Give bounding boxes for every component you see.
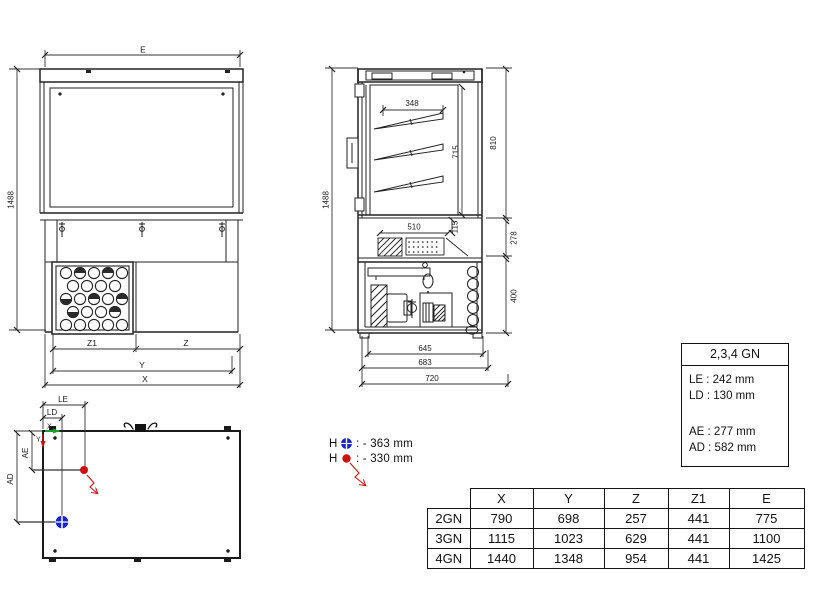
dim-label-e: E xyxy=(140,45,146,55)
legend-red-label: H xyxy=(329,453,340,465)
side-view-machine-compartment xyxy=(358,262,482,338)
spec-table-row-2gn: 2GN 790 698 257 441 775 xyxy=(428,509,805,529)
gn-info-title: 2,3,4 GN xyxy=(682,344,788,366)
dim-label-1488-side: 1488 xyxy=(322,191,331,209)
top-view-dimension-lines xyxy=(14,401,85,522)
front-view-adjuster-screws xyxy=(59,222,225,237)
side-view: 1488 348 715 810 510 115 278 400 645 683… xyxy=(320,45,540,400)
spec-cell: 1440 xyxy=(470,549,533,569)
spec-blank-cell xyxy=(428,489,471,509)
dim-label-278: 278 xyxy=(510,231,519,245)
dim-label-683: 683 xyxy=(418,358,432,367)
spec-header-y: Y xyxy=(533,489,604,509)
top-view-outline xyxy=(43,426,240,562)
spec-cell: 790 xyxy=(470,509,533,529)
spec-cell: 775 xyxy=(729,509,804,529)
spec-table: X Y Z Z1 E 2GN 790 698 257 441 775 3GN 1… xyxy=(427,488,805,569)
gn-info-row-le: LE : 242 mm xyxy=(689,373,788,389)
gn-info-box: 2,3,4 GN LE : 242 mm LD : 130 mm AE : 27… xyxy=(681,343,789,467)
dim-label-115: 115 xyxy=(451,220,460,233)
legend-blue-value: : - 363 mm xyxy=(356,438,413,450)
dim-label-ld: LD xyxy=(47,408,57,417)
dim-label-400: 400 xyxy=(510,289,519,303)
dim-label-ad: AD xyxy=(6,473,15,484)
dim-label-x: X xyxy=(142,374,148,384)
dim-label-348: 348 xyxy=(405,99,419,108)
gn-info-row-ld: LD : 130 mm xyxy=(689,389,788,405)
axis-label-y: Y xyxy=(36,437,41,444)
dim-label-720: 720 xyxy=(425,374,439,383)
top-view-axes xyxy=(43,431,59,447)
side-view-refrigerated-well xyxy=(358,238,482,262)
spec-cell: 1023 xyxy=(533,529,604,549)
dim-label-ae: AE xyxy=(21,448,30,459)
spec-cell: 441 xyxy=(668,529,729,549)
red-position-marker xyxy=(80,466,88,474)
front-view-control-panel xyxy=(52,262,133,334)
spec-row-label: 4GN xyxy=(428,549,471,569)
blue-marker-icon xyxy=(340,437,353,450)
dim-label-z1: Z1 xyxy=(87,338,97,348)
spec-header-z1: Z1 xyxy=(668,489,729,509)
dim-label-y: Y xyxy=(139,360,145,370)
top-view-labels: LE LD X Y AE AD xyxy=(6,395,68,485)
dim-label-le: LE xyxy=(58,395,68,404)
spec-cell: 954 xyxy=(604,549,668,569)
technical-drawing-sheet: { "front_view": { "dim_width_top": "E", … xyxy=(0,0,823,606)
dim-label-810: 810 xyxy=(489,136,498,150)
red-zigzag-arrow xyxy=(87,475,97,493)
spec-row-label: 3GN xyxy=(428,529,471,549)
dim-label-z: Z xyxy=(183,338,188,348)
gn-info-row-ae: AE : 277 mm xyxy=(689,425,788,441)
spec-cell: 1115 xyxy=(470,529,533,549)
legend-blue-label: H xyxy=(329,438,340,450)
front-view: E 1488 Z1 Z Y X xyxy=(0,45,260,405)
spec-table-row-4gn: 4GN 1440 1348 954 441 1425 xyxy=(428,549,805,569)
gn-info-body: LE : 242 mm LD : 130 mm AE : 277 mm AD :… xyxy=(682,366,788,466)
spec-cell: 629 xyxy=(604,529,668,549)
legend-row-blue: H : - 363 mm xyxy=(329,436,413,451)
spec-cell: 1100 xyxy=(729,529,804,549)
spec-cell: 257 xyxy=(604,509,668,529)
spec-cell: 1425 xyxy=(729,549,804,569)
spec-row-label: 2GN xyxy=(428,509,471,529)
legend-zigzag-arrow xyxy=(346,460,374,490)
axis-label-x: X xyxy=(47,424,52,431)
dim-label-645: 645 xyxy=(418,344,432,353)
spec-cell: 441 xyxy=(668,509,729,529)
spec-header-e: E xyxy=(729,489,804,509)
top-view: LE LD X Y AE AD xyxy=(5,395,270,580)
dim-label-1488-front: 1488 xyxy=(7,191,16,209)
dim-label-715: 715 xyxy=(452,145,461,159)
spec-cell: 1348 xyxy=(533,549,604,569)
dim-label-510: 510 xyxy=(407,223,421,232)
spec-cell: 441 xyxy=(668,549,729,569)
spec-table-row-3gn: 3GN 1115 1023 629 441 1100 xyxy=(428,529,805,549)
spec-table-header-row: X Y Z Z1 E xyxy=(428,489,805,509)
gn-info-row-ad: AD : 582 mm xyxy=(689,441,788,457)
spec-cell: 698 xyxy=(533,509,604,529)
spec-header-z: Z xyxy=(604,489,668,509)
spec-header-x: X xyxy=(470,489,533,509)
